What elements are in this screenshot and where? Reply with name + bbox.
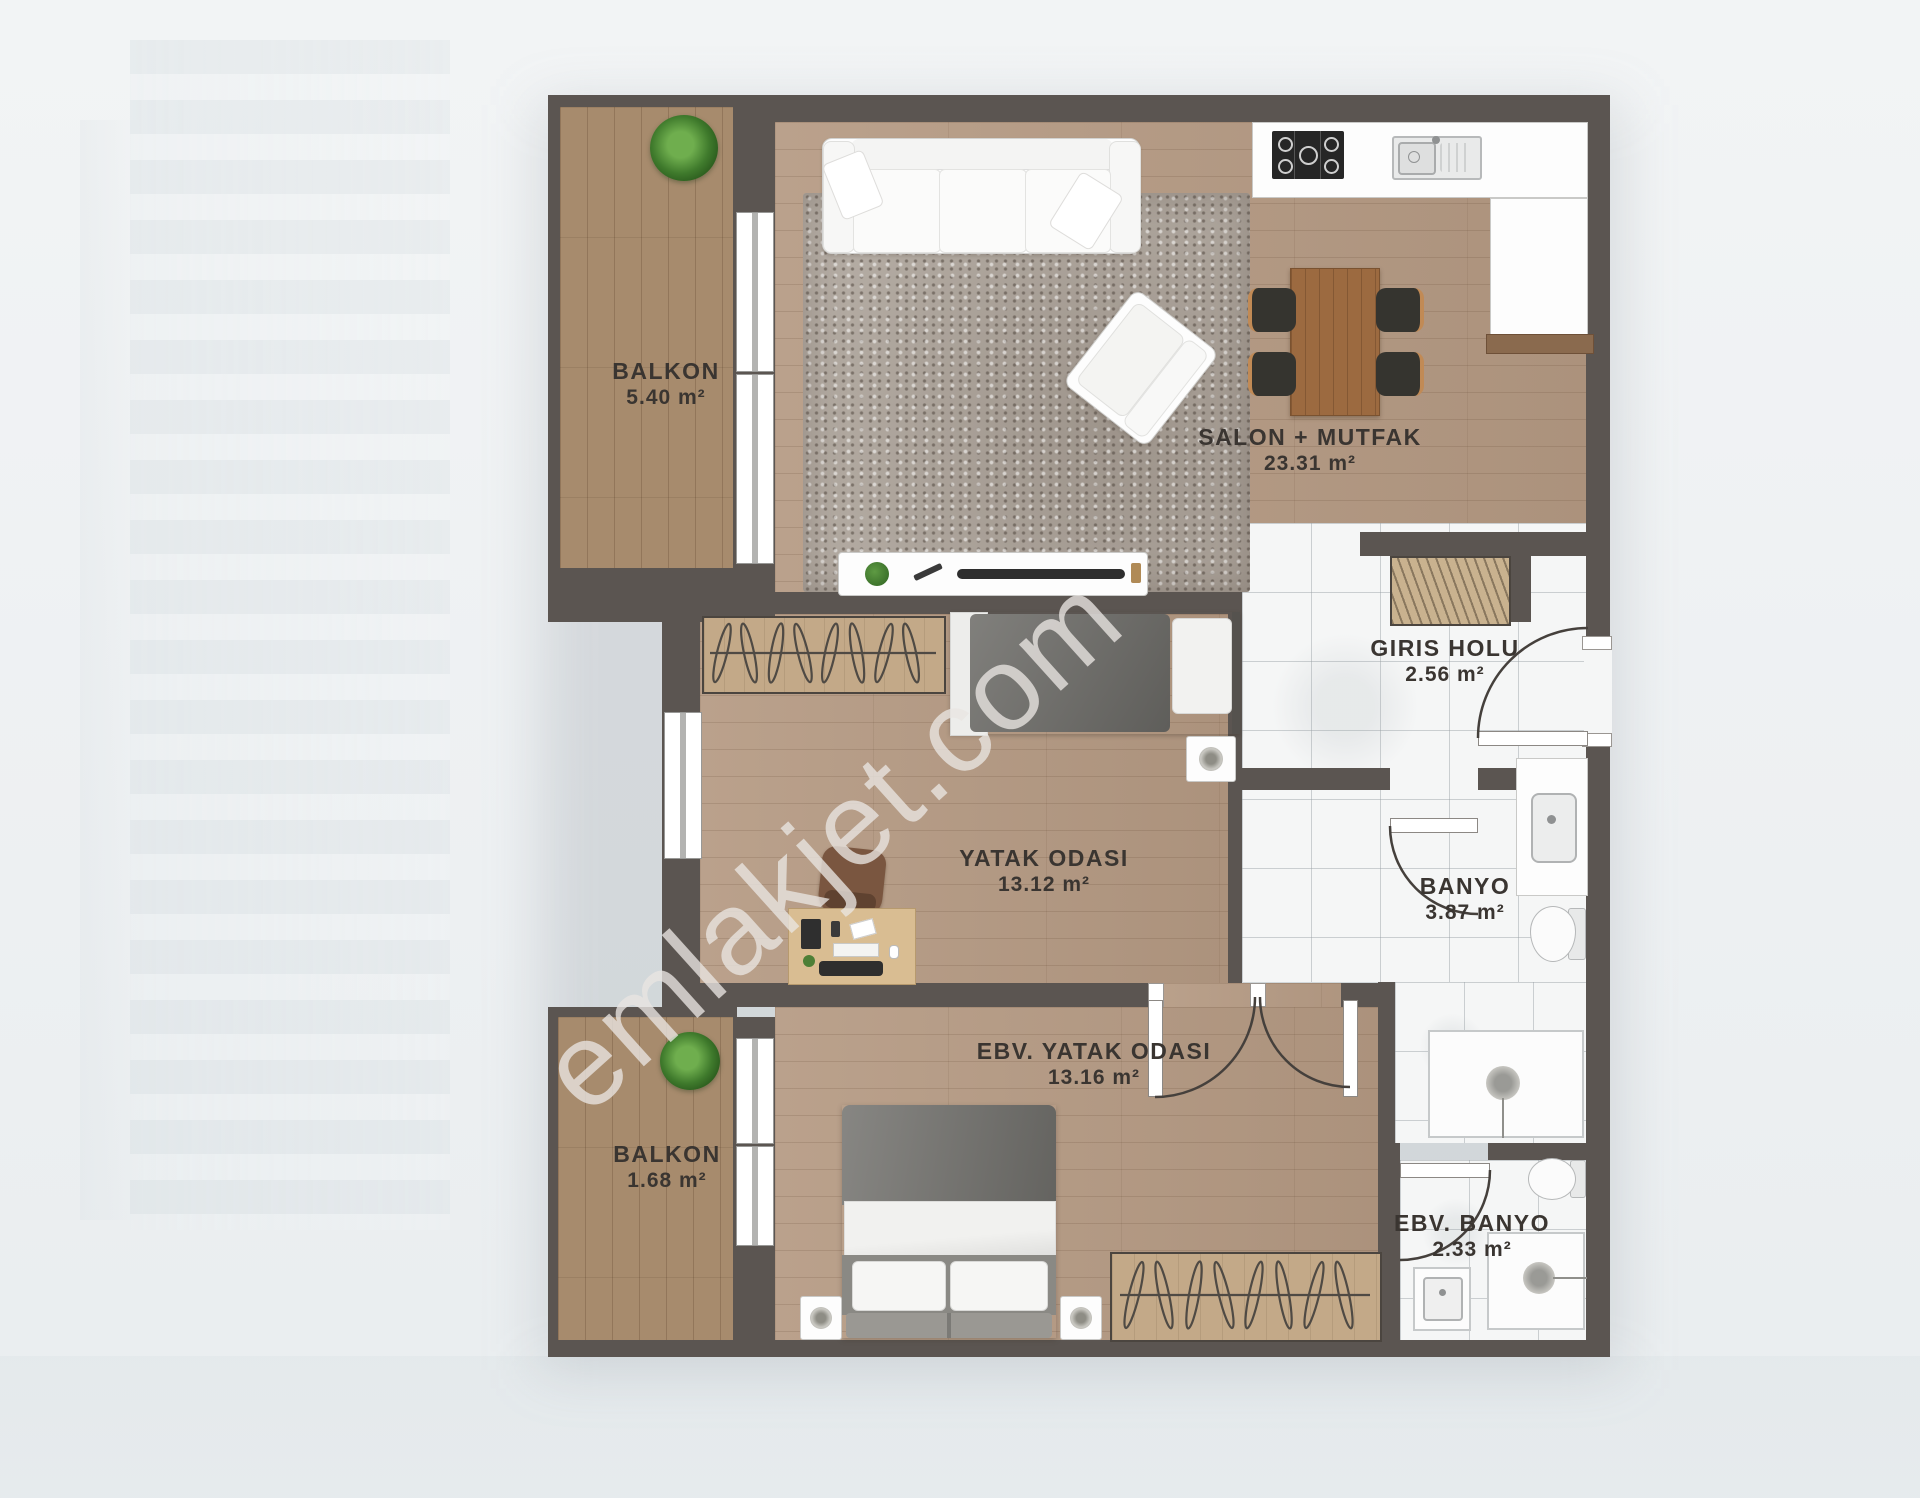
faucet-icon [1547,815,1556,824]
room-name: EBV. BANYO [1394,1210,1550,1237]
wall [1378,1143,1400,1160]
room-area: 2.56 m² [1370,662,1519,687]
plant-icon [865,562,889,586]
room-name: YATAK ODASI [959,845,1128,872]
room-name: GIRIS HOLU [1370,635,1519,662]
kitchen-shelf [1486,334,1594,354]
window [736,1038,774,1144]
wall [1478,768,1518,790]
desk-mat [819,961,883,976]
room-name: SALON + MUTFAK [1198,424,1422,451]
kitchen-cabinet [1490,198,1588,336]
room-label-ebv-banyo: EBV. BANYO 2.33 m² [1394,1210,1550,1262]
wall [1360,532,1610,556]
window [664,712,702,859]
bed-pillow [852,1261,946,1311]
bathroom-vanity [1516,758,1588,896]
cooktop [1272,131,1344,179]
burner-icon [1324,159,1339,174]
room-area: 2.33 m² [1394,1237,1550,1262]
wall [548,1340,1610,1357]
faucet-icon [1439,1289,1446,1296]
tv-console [838,552,1148,596]
nightstand [1186,736,1236,782]
bathroom-door-leaf [1390,818,1478,833]
dining-table [1290,268,1380,416]
burner-icon [1278,137,1293,152]
entrance-door-leaf [1478,731,1588,746]
wall [548,95,560,582]
faucet-icon [1432,136,1440,144]
room-label-yatak: YATAK ODASI 13.12 m² [959,845,1128,897]
shower-head-icon [1486,1066,1520,1100]
background-building [130,40,450,1230]
keyboard [833,943,879,957]
room-label-balkon-bottom: BALKON 1.68 m² [613,1141,720,1193]
decor-item [1131,563,1141,583]
wall [1378,982,1395,1160]
room-label-ebv-yatak: EBV. YATAK ODASI 13.16 m² [977,1038,1211,1090]
burner-icon [1278,159,1293,174]
room-name: BANYO [1420,873,1511,900]
kitchen-sink [1392,136,1482,180]
background-building-edge [80,120,140,1220]
doormat [1390,556,1511,626]
bed-pillow [1172,618,1232,714]
ebv-bedroom-door-leaf [1343,1000,1358,1097]
duvet [842,1105,1056,1205]
room-area: 5.40 m² [612,385,719,410]
window [736,374,774,564]
nightstand [800,1296,842,1340]
wall [733,95,1610,122]
entrance-opening [1584,650,1612,733]
remote [913,563,943,581]
sofa [822,138,1140,254]
dining-chair [1376,352,1424,396]
dining-chair [1248,288,1296,332]
room-label-banyo: BANYO 3.87 m² [1420,873,1511,925]
room-label-salon: SALON + MUTFAK 23.31 m² [1198,424,1422,476]
shower-head-icon [1523,1262,1555,1294]
floor-plan-page: BALKON 5.40 m² SALON + MUTFAK 23.31 m² G… [0,0,1920,1498]
bed-pillow [950,1261,1048,1311]
room-area: 13.16 m² [977,1065,1211,1090]
room-name: BALKON [613,1141,720,1168]
lamp-icon [810,1307,832,1329]
wardrobe [1110,1252,1382,1342]
lamp-icon [1070,1307,1092,1329]
room-label-balkon-top: BALKON 5.40 m² [612,358,719,410]
window [736,1146,774,1246]
burner-icon [1299,146,1318,165]
burner-icon [1324,137,1339,152]
ebv-bathroom-door-leaf [1400,1163,1490,1178]
bed-double [842,1105,1056,1338]
wall [1242,768,1390,790]
balcony-deck-top [560,107,733,568]
room-area: 3.87 m² [1420,900,1511,925]
room-name: BALKON [612,358,719,385]
room-label-giris: GIRIS HOLU 2.56 m² [1370,635,1519,687]
plant [650,115,718,181]
door-jamb [1250,983,1266,1007]
dining-chair [1248,352,1296,396]
lamp-icon [1199,747,1223,771]
room-area: 13.12 m² [959,872,1128,897]
notebook [849,918,876,940]
toilet [1526,1156,1586,1202]
room-area: 1.68 m² [613,1168,720,1193]
toilet [1528,902,1586,966]
shower [1428,1030,1584,1138]
mouse [889,945,899,959]
window [736,212,774,372]
headboard-bench [846,1313,1052,1338]
door-threshold [1582,636,1612,650]
nightstand [1060,1296,1102,1340]
sheet [844,1201,1056,1259]
room-area: 23.31 m² [1198,451,1422,476]
room-name: EBV. YATAK ODASI [977,1038,1211,1065]
washbasin [1413,1267,1471,1331]
dining-chair [1376,288,1424,332]
washbasin [1531,793,1577,863]
background-ground-band [0,1356,1920,1498]
